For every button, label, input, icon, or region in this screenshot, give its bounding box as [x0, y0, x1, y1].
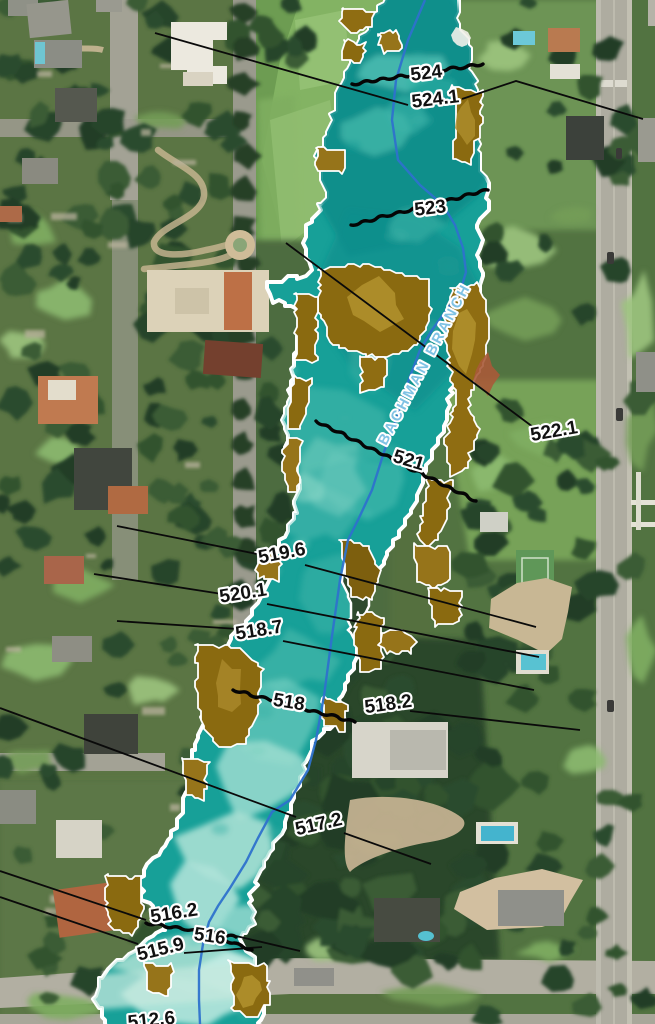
svg-text:516: 516 [193, 924, 227, 949]
svg-text:524: 524 [409, 61, 443, 86]
svg-text:523: 523 [413, 196, 447, 221]
